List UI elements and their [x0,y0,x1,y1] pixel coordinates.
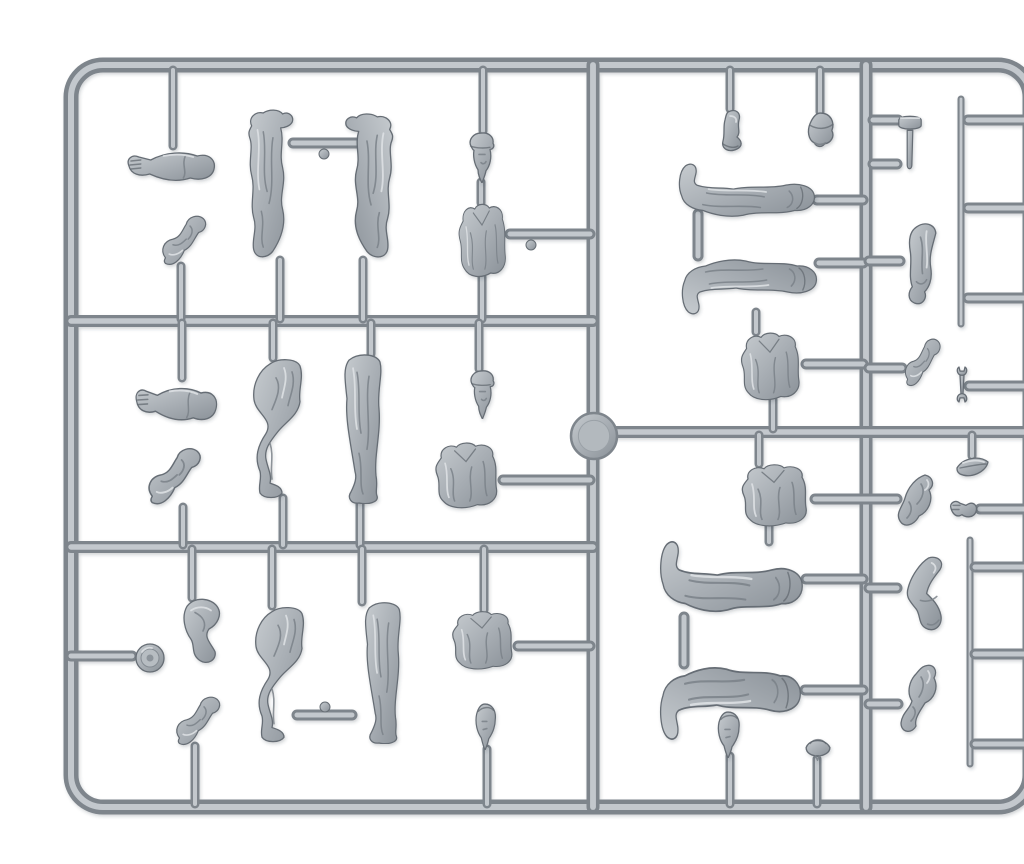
small-pod-shape [957,458,988,475]
torso-jacket-3-shape [453,612,512,669]
greatcoat-half-right-shape [346,114,393,257]
arm-bent-fist-4-shape [905,339,940,385]
bent-leg-piece [901,665,936,731]
hammer-tool [899,116,921,168]
head-bare-2 [718,712,739,758]
head-bare-2-shape [718,712,739,758]
legs-lying-1 [679,164,814,216]
gate-knob-1 [320,702,330,712]
arm-open-hand-2-shape [135,386,217,421]
torso-jacket-2-shape [436,443,497,508]
greatcoat-half-right [346,114,393,257]
arm-bent-fist-1-shape [163,216,206,264]
ankle-boot-shape [723,111,741,151]
legs-bent-pair-2-shape [256,608,304,742]
legs-straight-pair-2 [366,603,401,744]
legs-straight-pair-1 [345,355,381,504]
tiny-hand [951,502,977,517]
legs-straight-pair-2-shape [366,603,401,744]
head-with-cap-1-shape [470,133,494,183]
arm-bent-fist-1 [163,216,206,264]
head-with-cap-1 [470,133,494,183]
torso-jacket-4 [742,333,800,400]
ushanka-hat [808,113,832,146]
head-bare-1-shape [476,704,495,750]
legs-lying-3-shape [661,542,803,611]
arm-bent-fist-4 [905,339,940,385]
gauntlet-arm-shape [907,557,941,629]
injection-circle-inner [578,420,609,451]
greatcoat-half-left-shape [249,110,293,257]
arm-open-hand-1 [128,153,214,180]
head-bare-1 [476,704,495,750]
ankle-boot [723,111,741,151]
legs-bent-pair-1-shape [254,360,302,498]
arm-sleeve-down-shape [909,224,936,304]
torso-vest-shape [742,465,806,526]
folded-cloth-shape [898,475,932,525]
legs-lying-2-shape [682,260,816,314]
small-pod [957,458,988,475]
gauntlet-arm [907,557,941,629]
greatcoat-half-left [249,110,293,257]
legs-bent-pair-1 [254,360,302,498]
arm-bent-fist-3 [177,697,220,744]
gate-knob-2 [526,240,536,250]
legs-bent-pair-2 [256,608,304,742]
torso-vest [742,465,806,526]
single-bent-leg-shape [184,599,219,662]
legs-lying-2 [682,260,816,314]
arm-bent-fist-2 [149,449,200,504]
ushanka-hat-shape [808,113,832,146]
folded-cloth [898,475,932,525]
sprue-runner-framework [71,65,1024,807]
gate-knob-0 [319,149,329,159]
legs-lying-3 [661,542,803,611]
arm-bent-fist-3-shape [177,697,220,744]
rolled-item [136,644,164,672]
single-bent-leg [184,599,219,662]
rolled-item-shape [136,644,164,672]
head-with-cap-2 [471,371,494,419]
torso-jacket-2 [436,443,497,508]
head-with-cap-2-shape [471,371,494,419]
bent-leg-piece-shape [901,665,936,731]
injection-point [571,413,617,459]
hammer-tool-shape [899,116,921,168]
arm-bent-fist-2-shape [149,449,200,504]
arm-open-hand-1-shape [128,153,214,180]
sprue-photo [40,16,1024,848]
torso-jacket-3 [453,612,512,669]
torso-jacket-1 [459,204,505,276]
legs-straight-pair-1-shape [345,355,381,504]
torso-jacket-1-shape [459,204,505,276]
sprue-svg [40,16,1024,848]
legs-lying-1-shape [679,164,814,216]
tiny-hand-shape [951,502,977,517]
arm-sleeve-down [909,224,936,304]
arm-open-hand-2 [135,386,217,421]
torso-jacket-4-shape [742,333,800,400]
